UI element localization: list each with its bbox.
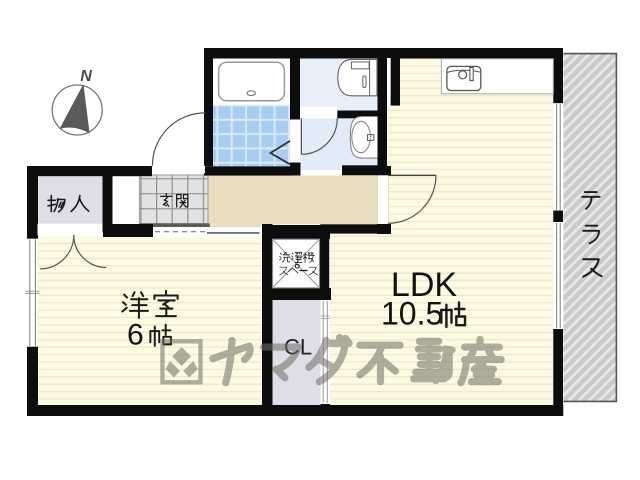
svg-text:N: N: [80, 68, 92, 85]
svg-text:10.5: 10.5: [381, 296, 443, 332]
svg-text:6: 6: [127, 319, 144, 352]
